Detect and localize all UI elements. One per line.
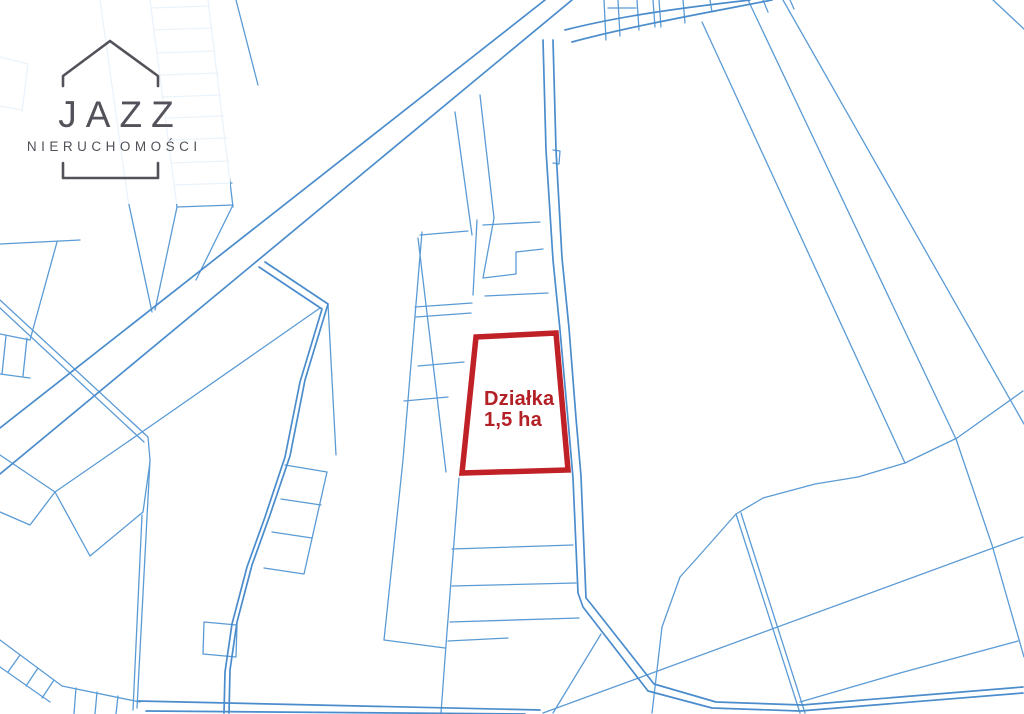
- logo-wordmark: JAZZ: [36, 94, 196, 136]
- parcel-area-text: 1,5 ha: [484, 410, 580, 431]
- map-canvas: Działka 1,5 ha JAZZ NIERUCHOMOŚCI: [0, 0, 1024, 714]
- logo-subtitle: NIERUCHOMOŚCI: [0, 139, 224, 154]
- parcel-area-label: Działka 1,5 ha: [484, 389, 580, 431]
- parcel-name-text: Działka: [484, 389, 580, 410]
- bracket-icon: [63, 163, 158, 178]
- agency-logo: JAZZ NIERUCHOMOŚCI: [0, 0, 230, 204]
